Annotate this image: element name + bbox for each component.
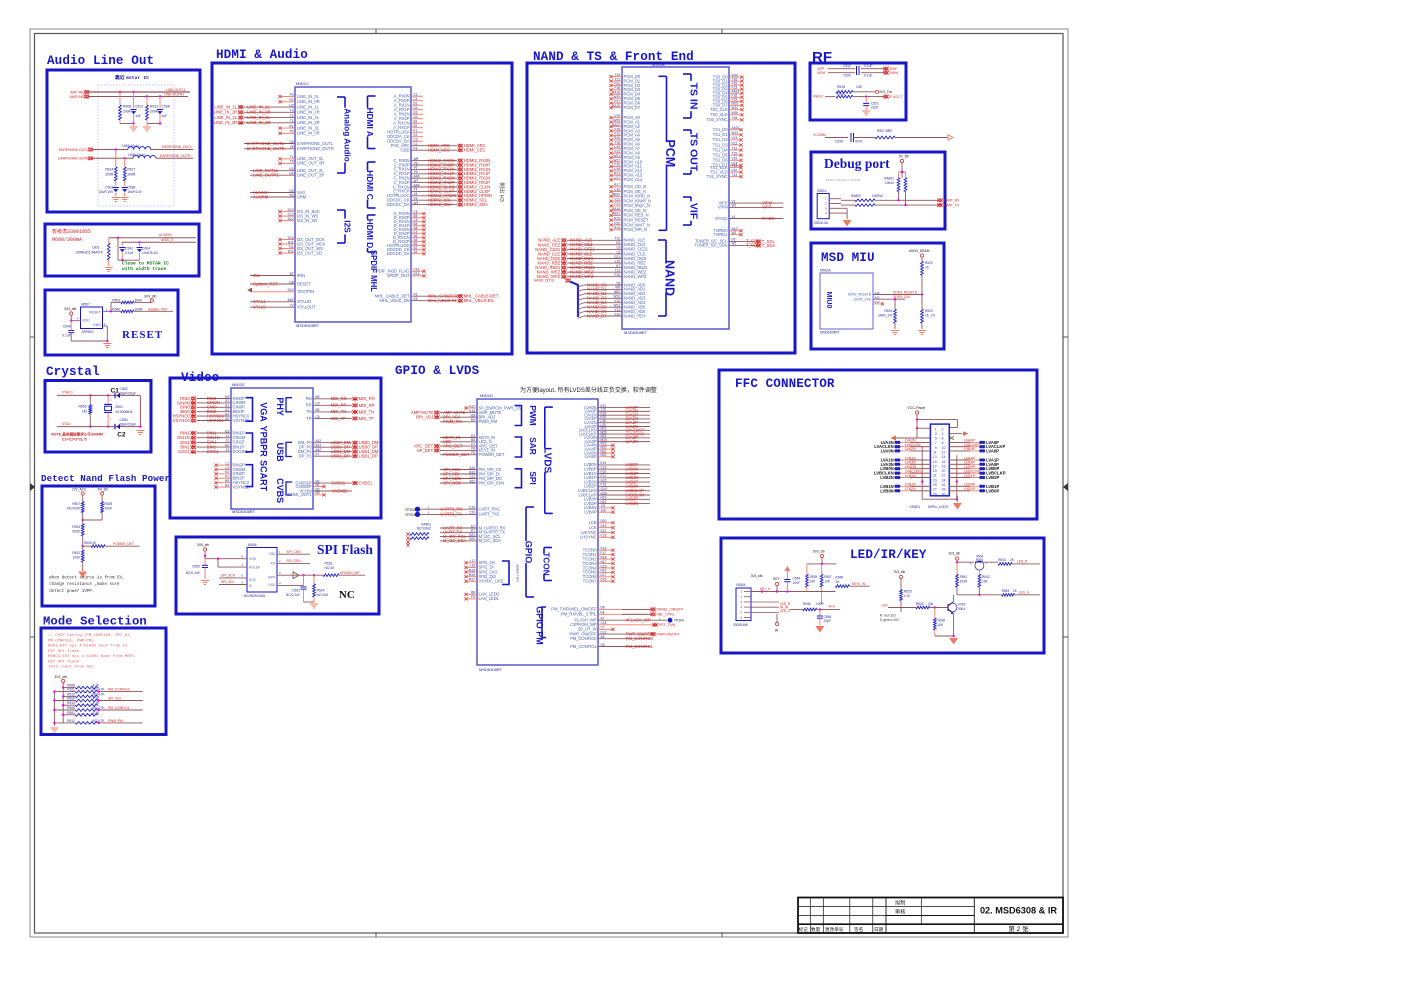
svg-text:HP_DET: HP_DET bbox=[417, 448, 434, 453]
svg-text:TS0_SYNC: TS0_SYNC bbox=[706, 117, 727, 122]
svg-text:R501: R501 bbox=[67, 711, 75, 715]
svg-text:VDD: VDD bbox=[82, 319, 90, 323]
svg-text:ARC_DET: ARC_DET bbox=[443, 443, 463, 448]
svg-text:LVB4P: LVB4P bbox=[584, 510, 597, 515]
svg-text:D8: D8 bbox=[601, 606, 605, 610]
svg-text:LVA2N: LVA2N bbox=[905, 447, 916, 451]
svg-text:R503: R503 bbox=[884, 309, 892, 313]
svg-text:R908: R908 bbox=[123, 105, 131, 109]
svg-text:50HM: 50HM bbox=[890, 71, 899, 75]
svg-text:5V_5tb: 5V_5tb bbox=[899, 155, 909, 159]
svg-text:A10: A10 bbox=[469, 466, 475, 470]
svg-text:#FLASH_WP: #FLASH_WP bbox=[626, 618, 651, 623]
svg-text:A7: A7 bbox=[601, 617, 605, 621]
svg-text:R517: R517 bbox=[127, 168, 135, 172]
svg-text:100Rx2: 100Rx2 bbox=[872, 194, 883, 198]
svg-text:mstar IC: mstar IC bbox=[126, 75, 149, 81]
svg-text:TP: TP bbox=[306, 416, 311, 421]
svg-text:2: 2 bbox=[825, 202, 827, 206]
svg-text:W10: W10 bbox=[613, 295, 620, 299]
svg-text:KEY_H: KEY_H bbox=[760, 587, 771, 591]
svg-text:16_1%: 16_1% bbox=[925, 314, 935, 318]
svg-text:150K: 150K bbox=[105, 507, 113, 511]
svg-text:PHY: PHY bbox=[275, 397, 285, 416]
svg-text:Analog Audio: Analog Audio bbox=[343, 108, 353, 162]
svg-text:标记: 标记 bbox=[799, 926, 809, 933]
svg-text:K18: K18 bbox=[469, 409, 475, 413]
svg-text:I2S_OUT_SD: I2S_OUT_SD bbox=[297, 250, 322, 255]
svg-text:VSS: VSS bbox=[268, 583, 275, 587]
svg-text:TN: TN bbox=[306, 409, 311, 414]
svg-text:16: 16 bbox=[925, 266, 929, 270]
svg-text:VIFP: VIFP bbox=[762, 205, 772, 210]
svg-text:LVA6P: LVA6P bbox=[964, 461, 975, 465]
svg-text:T10: T10 bbox=[615, 237, 621, 241]
svg-text:B10: B10 bbox=[469, 470, 475, 474]
svg-text:C18: C18 bbox=[601, 534, 607, 538]
svg-text:R17: R17 bbox=[614, 183, 620, 187]
svg-text:M600/300mA: M600/300mA bbox=[52, 237, 82, 243]
svg-text:19: 19 bbox=[933, 469, 937, 473]
svg-text:NC/100K: NC/100K bbox=[67, 507, 81, 511]
svg-text:AA2: AA2 bbox=[287, 298, 293, 302]
svg-text:LINE_IN_1R: LINE_IN_1R bbox=[247, 110, 271, 115]
svg-text:Debug port: Debug port bbox=[824, 156, 890, 171]
svg-text:LVA0P: LVA0P bbox=[964, 447, 975, 451]
svg-text:200K: 200K bbox=[150, 110, 159, 114]
svg-text:F22: F22 bbox=[615, 149, 621, 153]
svg-text:220R: 220R bbox=[960, 579, 968, 583]
svg-text:1: 1 bbox=[825, 197, 827, 201]
svg-text:C11: C11 bbox=[469, 475, 475, 479]
svg-text:R505 1K: R505 1K bbox=[84, 541, 97, 545]
svg-text:C604: C604 bbox=[142, 247, 150, 251]
svg-text:26: 26 bbox=[942, 483, 946, 487]
svg-text:C7: C7 bbox=[601, 626, 605, 630]
svg-text:1: 1 bbox=[740, 590, 742, 594]
svg-text:SPI_SDO: SPI_SDO bbox=[286, 559, 301, 563]
svg-text:6: 6 bbox=[740, 616, 742, 620]
svg-text:LVB0P: LVB0P bbox=[986, 488, 999, 493]
svg-text:RA801: RA801 bbox=[884, 177, 894, 181]
svg-text:D18: D18 bbox=[601, 547, 607, 551]
svg-text:SPI_CSN: SPI_CSN bbox=[443, 480, 461, 485]
svg-text:5: green LED: 5: green LED bbox=[880, 618, 899, 622]
svg-text:1: 1 bbox=[279, 550, 281, 554]
svg-text:LED/IR/KEY: LED/IR/KEY bbox=[850, 548, 927, 562]
svg-text:F9: F9 bbox=[471, 595, 475, 599]
svg-text:W19: W19 bbox=[613, 95, 620, 99]
svg-text:3V5_stb: 3V5_stb bbox=[197, 543, 209, 547]
svg-text:PM_RX/VBL_CTRL: PM_RX/VBL_CTRL bbox=[561, 612, 597, 617]
svg-text:C2: C2 bbox=[414, 142, 418, 146]
svg-text:L10: L10 bbox=[615, 259, 621, 263]
svg-text:4.7k: 4.7k bbox=[904, 594, 910, 598]
svg-text:33pF/20pF: 33pF/20pF bbox=[120, 391, 136, 395]
svg-text:V3: V3 bbox=[414, 197, 418, 201]
svg-text:EARPHONE_OUTR: EARPHONE_OUTR bbox=[297, 146, 334, 151]
svg-text:MHL_VBUS_DN: MHL_VBUS_DN bbox=[379, 298, 409, 303]
svg-text:NAND_D7: NAND_D7 bbox=[587, 313, 607, 318]
svg-text:D19: D19 bbox=[601, 524, 607, 528]
svg-text:W2: W2 bbox=[732, 242, 737, 246]
svg-text:R508: R508 bbox=[67, 706, 75, 710]
svg-text:F5: F5 bbox=[471, 451, 475, 455]
svg-text:VCOMM: VCOMM bbox=[813, 133, 826, 137]
svg-text:LINE-OUTR1: LINE-OUTR1 bbox=[164, 93, 184, 97]
svg-text:V19: V19 bbox=[614, 114, 620, 118]
svg-text:SERIES TXRT: SERIES TXRT bbox=[516, 564, 520, 583]
svg-text:HDMI & Audio: HDMI & Audio bbox=[216, 48, 308, 62]
svg-text:IFAGC: IFAGC bbox=[813, 95, 824, 99]
svg-text:W11: W11 bbox=[614, 303, 621, 307]
svg-text:C12: C12 bbox=[288, 212, 294, 216]
svg-text:HDMI_CEC: HDMI_CEC bbox=[464, 148, 486, 153]
svg-text:100MHZ/1.5A/NTK: 100MHZ/1.5A/NTK bbox=[75, 251, 104, 255]
svg-text:E8: E8 bbox=[601, 611, 605, 615]
svg-text:C2: C2 bbox=[414, 138, 418, 142]
svg-text:LINE_IN_2R: LINE_IN_2R bbox=[297, 120, 320, 125]
svg-text:XTALIN: XTALIN bbox=[297, 299, 311, 304]
svg-text:CVBS1: CVBS1 bbox=[331, 480, 345, 485]
svg-text:10: 10 bbox=[942, 446, 946, 450]
svg-text:0.1uF: 0.1uF bbox=[125, 251, 134, 255]
svg-text:MDI_RP: MDI_RP bbox=[331, 403, 347, 408]
svg-text:SAR: SAR bbox=[528, 437, 538, 455]
svg-text:C538: C538 bbox=[127, 186, 135, 190]
svg-text:0.1uF: 0.1uF bbox=[864, 64, 872, 68]
svg-text:HOLD#: HOLD# bbox=[249, 565, 260, 569]
svg-text:1uF: 1uF bbox=[162, 114, 168, 118]
svg-text:LVA3N: LVA3N bbox=[626, 439, 639, 444]
svg-text:1uF: 1uF bbox=[135, 114, 141, 118]
svg-text:N18: N18 bbox=[601, 555, 607, 559]
svg-text:B12: B12 bbox=[316, 444, 322, 448]
svg-text:PWM_PM: PWM_PM bbox=[479, 419, 498, 424]
svg-text:R507 68R: R507 68R bbox=[877, 129, 892, 133]
svg-text:U2: U2 bbox=[289, 103, 293, 107]
svg-text:B11: B11 bbox=[470, 479, 476, 483]
svg-text:2K: 2K bbox=[1010, 558, 1015, 562]
svg-text:C520: C520 bbox=[843, 74, 851, 78]
svg-text:SPDIF_OUT: SPDIF_OUT bbox=[387, 273, 410, 278]
svg-text:R515: R515 bbox=[837, 85, 845, 89]
svg-text:1011: boot from SEC: 1011: boot from SEC bbox=[48, 665, 94, 670]
svg-text:MHL_VBUS-EN: MHL_VBUS-EN bbox=[464, 298, 494, 303]
svg-text:L8: L8 bbox=[616, 246, 620, 250]
svg-text:MDI_RN: MDI_RN bbox=[331, 396, 347, 401]
svg-text:TP203: TP203 bbox=[405, 508, 416, 512]
svg-text:30: 30 bbox=[942, 492, 946, 496]
svg-text:D2: D2 bbox=[414, 106, 418, 110]
svg-text:T13: T13 bbox=[732, 164, 738, 168]
svg-text:R507: R507 bbox=[72, 502, 80, 506]
svg-text:PCM_WR_N: PCM_WR_N bbox=[624, 227, 647, 232]
svg-text:G11: G11 bbox=[614, 255, 620, 259]
svg-text:T12: T12 bbox=[732, 146, 738, 150]
svg-text:G3: G3 bbox=[225, 408, 229, 412]
svg-text:FFC CONNECTOR: FFC CONNECTOR bbox=[735, 377, 835, 391]
svg-text:LVB1N: LVB1N bbox=[905, 474, 917, 478]
svg-text:5V3_stb: 5V3_stb bbox=[813, 550, 825, 554]
svg-text:AP9510: AP9510 bbox=[82, 330, 94, 334]
svg-text:GPIO PM: GPIO PM bbox=[535, 606, 545, 645]
svg-text:DDR3_RESETB: DDR3_RESETB bbox=[848, 293, 871, 297]
svg-text:AB2: AB2 bbox=[614, 290, 620, 294]
svg-text:25: 25 bbox=[933, 483, 937, 487]
svg-text:HENC3_EXT spi 4'b1001 boot fr: HENC3_EXT spi 4'b1001 boot from MSPI bbox=[48, 654, 134, 659]
svg-text:AMP-INL: AMP-INL bbox=[70, 90, 84, 94]
svg-text:LINE_OUTR1: LINE_OUTR1 bbox=[253, 173, 280, 178]
svg-text:200K: 200K bbox=[123, 110, 132, 114]
svg-text:7: 7 bbox=[241, 563, 243, 567]
svg-text:U17: U17 bbox=[614, 176, 620, 180]
svg-text:C2: C2 bbox=[117, 432, 126, 439]
svg-text:NC/0.1uF: NC/0.1uF bbox=[286, 593, 300, 597]
svg-text:C1: C1 bbox=[414, 93, 418, 97]
svg-text:EARPHONE-OUTR: EARPHONE-OUTR bbox=[58, 157, 88, 161]
svg-text:9006: 9006 bbox=[976, 558, 983, 562]
svg-text:AA5: AA5 bbox=[414, 175, 420, 179]
svg-text:MSD6308RT: MSD6308RT bbox=[479, 667, 503, 672]
svg-text:M506: M506 bbox=[248, 543, 257, 547]
svg-text:390K: 390K bbox=[134, 299, 143, 303]
svg-text:VIFM: VIFM bbox=[817, 71, 825, 75]
svg-text:XS801: XS801 bbox=[909, 505, 920, 509]
svg-text:VBL_CTRL: VBL_CTRL bbox=[657, 613, 675, 617]
svg-text:R19: R19 bbox=[614, 226, 620, 230]
svg-text:TP204: TP204 bbox=[674, 619, 684, 623]
svg-text:GPIO: GPIO bbox=[524, 541, 534, 564]
svg-text:UART_RX: UART_RX bbox=[944, 199, 960, 203]
svg-text:LVB3N: LVB3N bbox=[626, 501, 639, 506]
svg-text:B20: B20 bbox=[469, 537, 475, 541]
svg-text:LINE_IN_1L: LINE_IN_1L bbox=[247, 104, 270, 109]
svg-text:EARPHONE_OUTL: EARPHONE_OUTL bbox=[247, 141, 285, 146]
svg-text:R539: R539 bbox=[105, 502, 113, 506]
svg-text:CVBS_OUT1: CVBS_OUT1 bbox=[287, 492, 312, 497]
svg-text:拟制: 拟制 bbox=[895, 899, 905, 907]
svg-text:R: red LED: R: red LED bbox=[880, 614, 896, 618]
svg-text:with width trace: with width trace bbox=[122, 266, 166, 272]
svg-text:3V3_stb: 3V3_stb bbox=[949, 552, 961, 556]
svg-text:1K: 1K bbox=[835, 580, 840, 584]
svg-text:IR.in: IR.in bbox=[829, 605, 836, 609]
svg-text:E5: E5 bbox=[414, 297, 418, 301]
svg-text:ODD: ODD bbox=[400, 148, 409, 153]
svg-text:LVA3N: LVA3N bbox=[905, 461, 916, 465]
svg-text:3: 3 bbox=[985, 561, 987, 565]
svg-text:NAND: NAND bbox=[663, 260, 677, 296]
svg-text:22pF: 22pF bbox=[824, 619, 831, 623]
svg-text:F3: F3 bbox=[414, 147, 418, 151]
svg-text:10Kx2: 10Kx2 bbox=[885, 181, 894, 185]
svg-text:R532: R532 bbox=[72, 551, 80, 555]
svg-text:1: 1 bbox=[110, 417, 112, 421]
svg-text:L17: L17 bbox=[470, 559, 476, 563]
svg-text:NC/1K: NC/1K bbox=[325, 566, 336, 570]
svg-text:M_I2C_SDA: M_I2C_SDA bbox=[443, 538, 466, 543]
svg-text:UART_TX2: UART_TX2 bbox=[479, 512, 500, 517]
svg-text:N20: N20 bbox=[601, 453, 607, 457]
svg-text:LINE_IN_1L: LINE_IN_1L bbox=[297, 104, 320, 109]
svg-text:Y12: Y12 bbox=[614, 308, 620, 312]
svg-text:C12: C12 bbox=[601, 630, 607, 634]
svg-text:P3: P3 bbox=[290, 93, 294, 97]
svg-text:L18: L18 bbox=[470, 564, 476, 568]
svg-text:1: 1 bbox=[106, 307, 108, 311]
svg-text:Y5: Y5 bbox=[414, 161, 418, 165]
svg-text:R510: R510 bbox=[67, 701, 75, 705]
svg-text:VGA: VGA bbox=[259, 402, 269, 422]
svg-text:T18: T18 bbox=[615, 141, 621, 145]
svg-text:W14: W14 bbox=[732, 106, 739, 110]
svg-text:when detect source is from 5V,: when detect source is from 5V, bbox=[49, 576, 124, 581]
svg-text:1: 1 bbox=[428, 511, 430, 515]
svg-text:15: 15 bbox=[933, 460, 937, 464]
svg-text:3V3_stb: 3V3_stb bbox=[64, 307, 77, 311]
svg-text:W7: W7 bbox=[414, 179, 419, 183]
svg-text:AA16: AA16 bbox=[612, 207, 620, 211]
svg-text:暂考虑: 暂考虑 bbox=[52, 228, 67, 235]
svg-text:V13: V13 bbox=[732, 136, 738, 140]
svg-text:F10: F10 bbox=[615, 273, 621, 277]
svg-text:V4: V4 bbox=[414, 192, 418, 196]
svg-text:HDMI2_SDA: HDMI2_SDA bbox=[464, 202, 488, 207]
svg-text:11: 11 bbox=[933, 451, 937, 455]
svg-text:Y2: Y2 bbox=[290, 304, 294, 308]
svg-text:XTALOUT: XTALOUT bbox=[297, 305, 316, 310]
svg-text:T11: T11 bbox=[288, 245, 293, 249]
svg-text:20: 20 bbox=[942, 469, 946, 473]
svg-text:R540: R540 bbox=[112, 307, 120, 311]
svg-text:M501E: M501E bbox=[232, 382, 245, 387]
svg-text:LVB1N: LVB1N bbox=[905, 483, 917, 487]
svg-text:2: 2 bbox=[110, 397, 112, 401]
svg-text:P2: P2 bbox=[290, 130, 294, 134]
svg-text:POWER_DET: POWER_DET bbox=[113, 542, 134, 546]
svg-text:KEY: KEY bbox=[773, 577, 781, 581]
svg-text:Detect Nand Flash Power: Detect Nand Flash Power bbox=[41, 473, 170, 484]
svg-text:D9: D9 bbox=[471, 418, 475, 422]
svg-text:SI: SI bbox=[249, 584, 252, 588]
svg-text:Y5: Y5 bbox=[616, 281, 620, 285]
svg-text:签名: 签名 bbox=[854, 926, 863, 933]
svg-text:F20: F20 bbox=[615, 163, 621, 167]
svg-text:0.1uF: 0.1uF bbox=[62, 334, 71, 338]
svg-text:24: 24 bbox=[942, 478, 946, 482]
svg-text:100R: 100R bbox=[134, 307, 143, 311]
svg-text:M507: M507 bbox=[82, 303, 91, 307]
svg-text:R543: R543 bbox=[998, 558, 1006, 562]
svg-text:MIU0: MIU0 bbox=[825, 292, 832, 309]
svg-text:B2: B2 bbox=[414, 124, 418, 128]
svg-text:R522: R522 bbox=[925, 309, 933, 313]
svg-text:F1: F1 bbox=[414, 129, 418, 133]
svg-text:W17: W17 bbox=[613, 158, 620, 162]
svg-text:3: 3 bbox=[740, 600, 742, 604]
svg-text:LINE_IN_2L: LINE_IN_2L bbox=[297, 115, 320, 120]
svg-text:2: 2 bbox=[942, 427, 944, 431]
svg-text:TSPID1: TSPID1 bbox=[713, 232, 728, 237]
svg-text:靠近: 靠近 bbox=[115, 74, 125, 81]
svg-text:H3: H3 bbox=[225, 395, 229, 399]
svg-text:1: 1 bbox=[659, 616, 661, 620]
svg-text:AVDD_DRAM: AVDD_DRAM bbox=[909, 249, 930, 253]
svg-text:N16: N16 bbox=[601, 569, 607, 573]
svg-text:22nF: 22nF bbox=[871, 106, 879, 110]
svg-text:SPI Flash: SPI Flash bbox=[317, 542, 373, 557]
svg-text:ALIVE5V: ALIVE5V bbox=[159, 233, 173, 237]
svg-text:1: 1 bbox=[935, 427, 937, 431]
svg-text:RA802: RA802 bbox=[851, 194, 861, 198]
svg-text:TUNER_I2C_SDA: TUNER_I2C_SDA bbox=[694, 243, 727, 248]
svg-text:J3: J3 bbox=[226, 448, 230, 452]
svg-text:XTALO: XTALO bbox=[62, 391, 73, 395]
svg-text:A9: A9 bbox=[601, 635, 605, 639]
svg-text:RESET: RESET bbox=[297, 281, 311, 286]
svg-text:NC: NC bbox=[339, 589, 355, 601]
svg-text:MDI_TN: MDI_TN bbox=[331, 409, 347, 414]
svg-text:1: 1 bbox=[428, 505, 430, 509]
svg-text:C8: C8 bbox=[316, 415, 320, 419]
svg-text:F15: F15 bbox=[615, 127, 621, 131]
svg-text:MHL_VBUS-IN: MHL_VBUS-IN bbox=[428, 298, 456, 303]
svg-text:1M: 1M bbox=[82, 409, 87, 413]
svg-text:D21: D21 bbox=[601, 529, 607, 533]
svg-text:LINE_IN_0L: LINE_IN_0L bbox=[297, 94, 320, 99]
svg-text:R524: R524 bbox=[317, 589, 325, 593]
svg-text:R528: R528 bbox=[916, 602, 924, 606]
svg-text:33001055: 33001055 bbox=[67, 229, 91, 235]
svg-text:LINE_IN_2L: LINE_IN_2L bbox=[247, 115, 270, 120]
svg-text:H2: H2 bbox=[225, 443, 229, 447]
svg-text:LAN_LED1: LAN_LED1 bbox=[479, 596, 500, 601]
svg-text:J1: J1 bbox=[226, 434, 230, 438]
svg-text:MDI_RP: MDI_RP bbox=[359, 403, 375, 408]
svg-text:G5: G5 bbox=[225, 417, 229, 421]
svg-text:C549: C549 bbox=[63, 325, 71, 329]
svg-text:DDR3_CKE: DDR3_CKE bbox=[854, 297, 871, 301]
svg-text:EARPHONE_OUTL: EARPHONE_OUTL bbox=[162, 145, 192, 149]
svg-text:LVB2N: LVB2N bbox=[880, 475, 893, 480]
svg-text:K5: K5 bbox=[616, 241, 620, 245]
svg-text:U3: U3 bbox=[289, 167, 293, 171]
svg-text:W13: W13 bbox=[732, 131, 739, 135]
svg-text:2: 2 bbox=[740, 595, 742, 599]
svg-text:3: 3 bbox=[825, 206, 827, 210]
svg-text:Y6: Y6 bbox=[414, 170, 418, 174]
svg-text:NC/0.1uF: NC/0.1uF bbox=[186, 571, 200, 575]
svg-text:NC/W25X40A: NC/W25X40A bbox=[244, 594, 266, 598]
svg-text:TS1_SYNC: TS1_SYNC bbox=[706, 174, 727, 179]
svg-text:EARPHONE_OUTL: EARPHONE_OUTL bbox=[297, 141, 334, 146]
svg-text:J18: J18 bbox=[470, 414, 475, 418]
svg-text:R520: R520 bbox=[925, 261, 933, 265]
svg-text:M501B: M501B bbox=[652, 62, 665, 67]
svg-text:W3: W3 bbox=[414, 201, 419, 205]
svg-text:K2: K2 bbox=[225, 470, 229, 474]
svg-text:200R: 200R bbox=[127, 173, 136, 177]
svg-text:AA7: AA7 bbox=[316, 448, 322, 452]
svg-text:C551: C551 bbox=[292, 589, 300, 593]
svg-text:10uF/10V: 10uF/10V bbox=[99, 190, 114, 194]
svg-text:R2: R2 bbox=[289, 98, 293, 102]
svg-text:LB3DN: LB3DN bbox=[905, 465, 917, 469]
svg-text:XTALI: XTALI bbox=[62, 422, 71, 426]
svg-text:T11: T11 bbox=[615, 268, 620, 272]
svg-text:SOG1: SOG1 bbox=[207, 449, 219, 454]
